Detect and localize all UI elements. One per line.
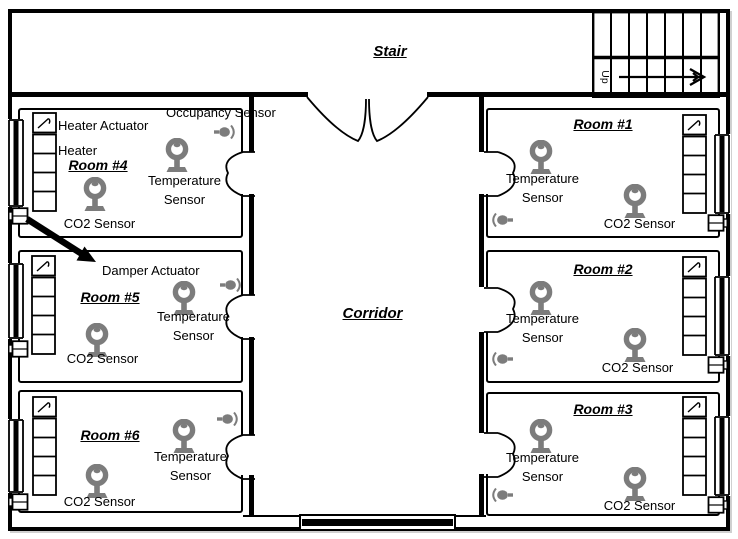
room-5-occupancy-sensor	[219, 276, 243, 294]
window-icon	[7, 119, 25, 207]
room-1-co2-label: CO2 Sensor	[592, 215, 687, 234]
occupancy-sensor-icon	[213, 123, 237, 141]
stairs-up-label: Up	[599, 70, 611, 84]
damper-box-icon	[8, 340, 29, 358]
heater-icon	[683, 419, 706, 496]
occupancy-sensor-icon	[490, 486, 514, 504]
corridor-wall-right-3	[479, 332, 484, 433]
room-2-co2-label: CO2 Sensor	[590, 359, 685, 378]
room-6-co2-label: CO2 Sensor	[52, 493, 147, 512]
corridor-wall-right-2	[479, 194, 484, 287]
damper-box-icon	[707, 496, 728, 514]
room-6-title: Room #6	[64, 427, 156, 443]
heater-icon	[683, 137, 706, 214]
corridor-wall-right-1	[479, 97, 484, 152]
corridor-wall-left-3	[249, 337, 254, 435]
damper-actuator-label: Damper Actuator	[102, 262, 200, 281]
room-3-occupancy-sensor	[490, 486, 514, 504]
room-2-heater	[682, 256, 708, 357]
room-4-window	[7, 119, 25, 207]
room-2-temperature-label: Temperature Sensor	[490, 310, 595, 348]
heater-actuator-dial-icon	[683, 397, 706, 417]
window-icon	[7, 263, 25, 339]
corridor-wall-right-4	[479, 474, 484, 516]
room-3-window	[713, 416, 731, 496]
corridor-wall-left-4	[249, 475, 254, 516]
double-door-arc-icon	[301, 94, 434, 150]
stairs-icon: Up	[592, 11, 720, 98]
stair-band-wall-left	[12, 92, 308, 97]
room-3-heater	[682, 396, 708, 497]
room-1-occupancy-sensor	[490, 211, 514, 229]
corridor-double-door	[301, 94, 434, 150]
corridor-label: Corridor	[330, 305, 415, 322]
stairs-up-arrow-icon	[619, 69, 704, 85]
room-5-damper-box	[8, 340, 29, 358]
room-4-occupancy-sensor	[213, 123, 237, 141]
room-6-temperature-label: Temperature Sensor	[138, 448, 243, 486]
room-3-damper-box	[707, 496, 728, 514]
occupancy-sensor-icon	[219, 276, 243, 294]
window-icon	[713, 416, 731, 496]
room-3-co2-label: CO2 Sensor	[592, 497, 687, 516]
room-4-title: Room #4	[52, 157, 144, 173]
room-6-damper-box	[8, 493, 29, 511]
heater-actuator-label: Heater Actuator	[58, 117, 148, 136]
heater-icon	[33, 419, 56, 496]
room-4-temperature-sensor	[162, 138, 192, 174]
room-4-temperature-label: Temperature Sensor	[132, 172, 237, 210]
occupancy-sensor-icon	[490, 350, 514, 368]
room-1-temperature-label: Temperature Sensor	[490, 170, 595, 208]
heater-actuator-dial-icon	[33, 397, 56, 417]
room-5-title: Room #5	[64, 289, 156, 305]
room-2-occupancy-sensor	[490, 350, 514, 368]
damper-box-icon	[8, 493, 29, 511]
occupancy-sensor-icon	[216, 410, 240, 428]
heater-actuator-dial-icon	[33, 113, 56, 133]
room-6-heater	[32, 396, 58, 497]
building-floor-plan: Stair Up	[0, 0, 738, 539]
window-icon	[713, 134, 731, 214]
stair-label: Stair	[348, 43, 432, 60]
room-5-co2-label: CO2 Sensor	[55, 350, 150, 369]
temperature-sensor-icon	[162, 138, 192, 174]
room-1-damper-box	[707, 214, 728, 232]
room-6-window	[7, 419, 25, 493]
room-1-window	[713, 134, 731, 214]
heater-actuator-dial-icon	[683, 257, 706, 277]
room-3-temperature-label: Temperature Sensor	[490, 449, 595, 487]
window-icon	[7, 419, 25, 493]
room-5-temperature-label: Temperature Sensor	[141, 308, 246, 346]
room-2-damper-box	[707, 356, 728, 374]
room-6-occupancy-sensor	[216, 410, 240, 428]
heater-actuator-dial-icon	[683, 115, 706, 135]
room-5-window	[7, 263, 25, 339]
room-1-heater	[682, 114, 708, 215]
main-entrance-door	[299, 514, 456, 531]
occupancy-sensor-label: Occupancy Sensor	[166, 104, 276, 123]
window-icon	[713, 276, 731, 356]
occupancy-sensor-icon	[490, 211, 514, 229]
room-3-title: Room #3	[557, 401, 649, 417]
corridor-bottom-wall-right	[454, 515, 486, 517]
heater-icon	[683, 279, 706, 356]
heater-icon	[32, 278, 55, 355]
room-1-title: Room #1	[557, 116, 649, 132]
room-2-window	[713, 276, 731, 356]
corridor-bottom-wall-left	[243, 515, 301, 517]
damper-box-icon	[707, 214, 728, 232]
entrance-door-icon	[302, 519, 453, 526]
room-4-co2-label: CO2 Sensor	[52, 215, 147, 234]
room-2-title: Room #2	[557, 261, 649, 277]
staircase: Up	[592, 11, 720, 98]
corridor-wall-left-2	[249, 194, 254, 295]
damper-box-icon	[707, 356, 728, 374]
